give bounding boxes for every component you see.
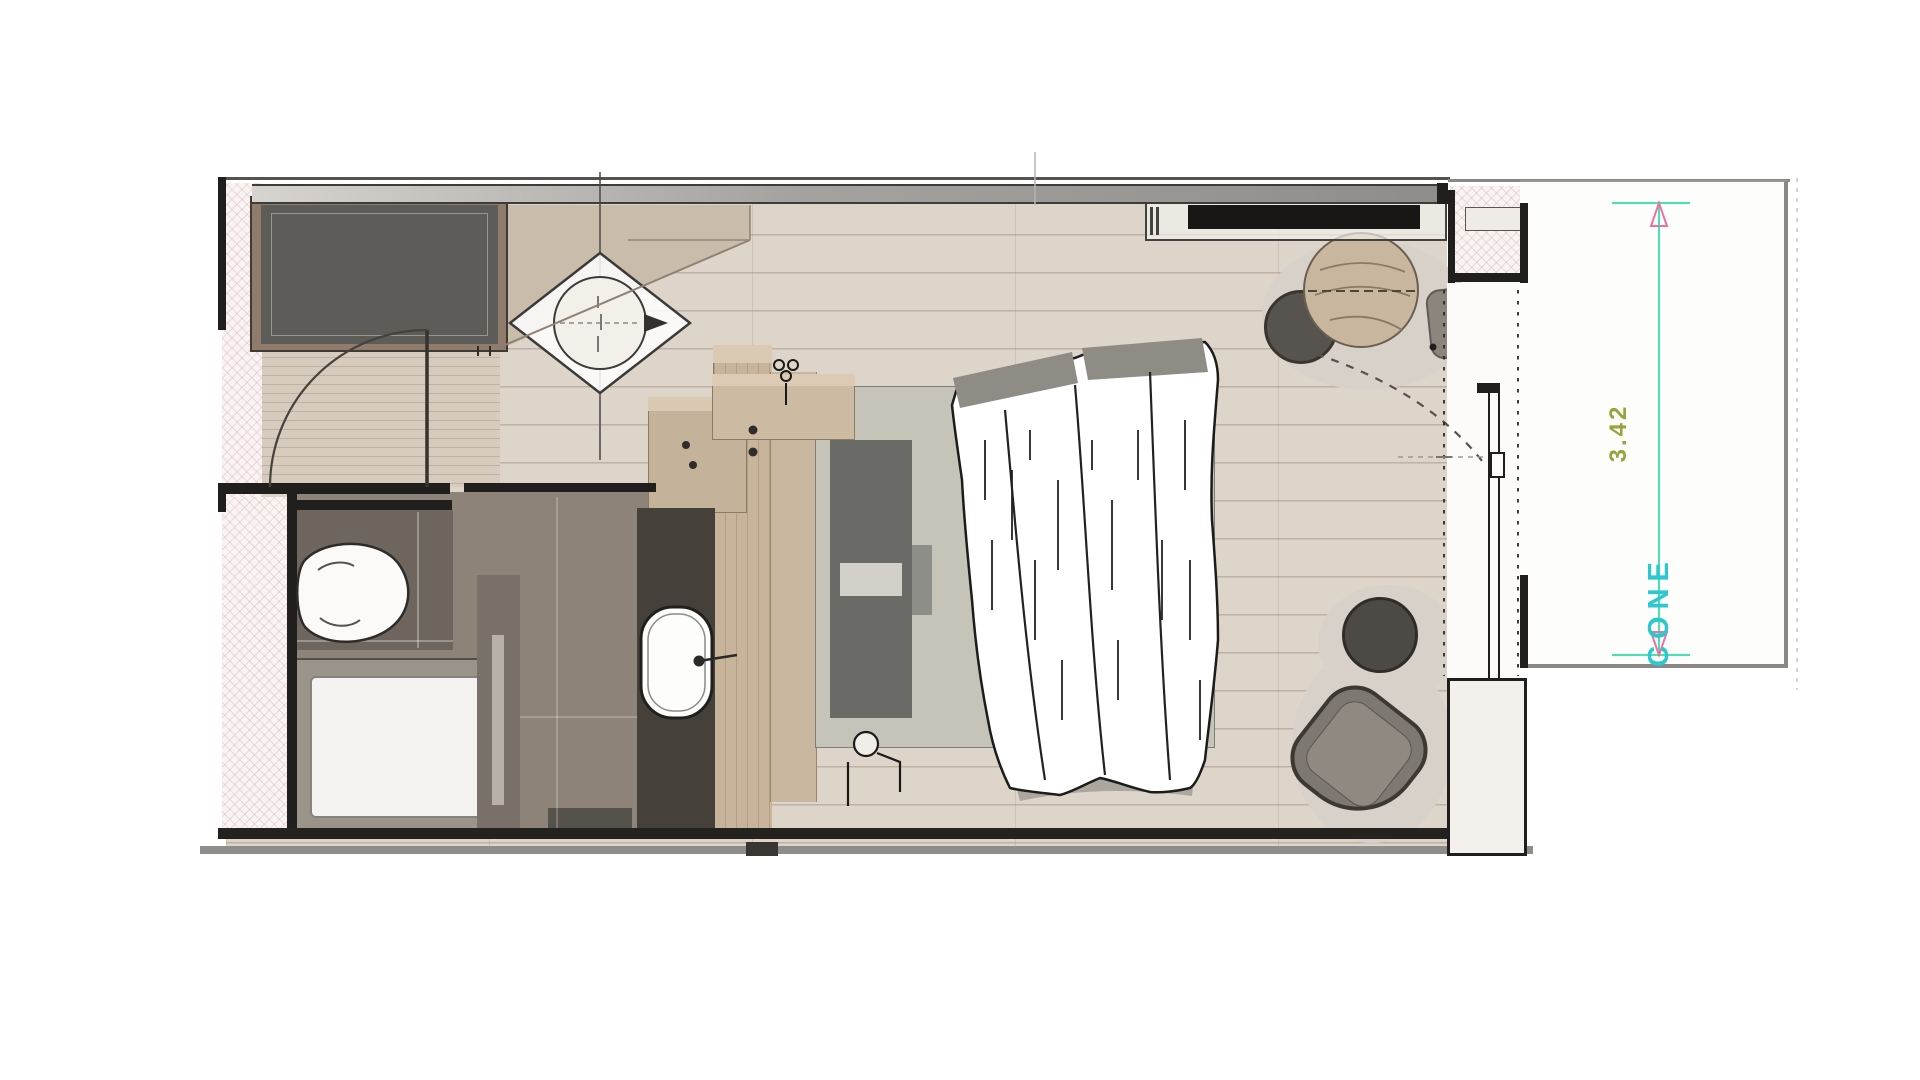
balcony-door-hinge-bracket xyxy=(1477,383,1500,393)
wall-top-end-cap xyxy=(1437,183,1448,204)
balcony-left-seg-lower xyxy=(1520,575,1528,668)
vanity-counter xyxy=(637,508,715,832)
grout-line xyxy=(520,716,637,718)
shower-tray xyxy=(310,676,482,818)
wall-bottom-black xyxy=(218,828,1447,839)
wardrobe-inner-line xyxy=(271,213,488,336)
balcony-depth-dimension: 3.42 xyxy=(1605,387,1633,479)
balcony-area-label: CONE xyxy=(1643,536,1675,686)
pillow-tab xyxy=(912,545,932,615)
balcony-door-handle xyxy=(1490,452,1505,478)
shower-glass-highlight xyxy=(492,635,504,805)
tv-screen xyxy=(1188,205,1420,229)
partition-top-face xyxy=(713,345,772,363)
wall-top-outer-line xyxy=(218,177,1450,180)
side-stool xyxy=(1342,597,1418,673)
tv-bracket xyxy=(1156,207,1159,235)
entry-mat xyxy=(262,330,500,487)
nightstand-top-face xyxy=(712,374,855,386)
grout-line xyxy=(417,512,419,648)
wall-bottom-tick xyxy=(746,842,778,856)
dining-table xyxy=(1303,232,1419,348)
balcony-door-leaf xyxy=(1488,390,1500,678)
wall-left-upper xyxy=(218,177,226,330)
wall-bottom-gray xyxy=(200,846,1533,854)
exterior-hatch-left-lower xyxy=(222,497,287,832)
wall-bath-north-inner xyxy=(295,500,452,510)
tv-bracket xyxy=(1150,207,1153,235)
window-zone xyxy=(1447,283,1520,680)
bath-mat xyxy=(548,808,632,828)
grout-line xyxy=(295,640,453,642)
grout-line xyxy=(556,497,558,830)
toilet-tile-zone xyxy=(295,510,453,650)
balcony-left-seg-upper xyxy=(1520,203,1528,283)
floor-plan: 3.42 CONE xyxy=(0,0,1920,1080)
wall-bath-north-b xyxy=(464,483,656,492)
wall-top xyxy=(252,184,1445,204)
wall-stub-vert xyxy=(1448,190,1455,283)
pier-lower xyxy=(1447,678,1527,856)
wall-bath-west xyxy=(287,492,297,832)
wall-bath-north-a xyxy=(218,483,450,494)
pillow-notch xyxy=(840,563,902,596)
